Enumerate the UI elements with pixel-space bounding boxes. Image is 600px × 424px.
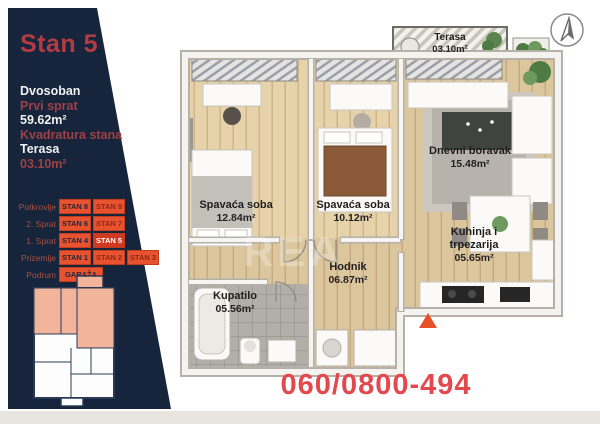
flyer-page: Stan 5 Dvosoban Prvi sprat 59.62m² Kvadr… xyxy=(0,0,600,424)
floorplan-drawing xyxy=(0,0,600,424)
room-label-kuhinja: Kuhinja i trpezarija 05.65m² xyxy=(433,226,515,265)
room-label-terasa: Terasa 03.10m² xyxy=(432,32,467,55)
room-label-spavaca-2: Spavaća soba 10.12m² xyxy=(316,199,389,225)
room-label-dnevni-boravak: Dnevni boravak 15.48m² xyxy=(429,145,511,171)
living-room-furniture xyxy=(406,59,552,212)
room-label-hodnik: Hodnik 06.87m² xyxy=(328,261,367,287)
phone-number: 060/0800-494 xyxy=(281,369,472,402)
compass-icon xyxy=(547,11,587,51)
room-label-kupatilo: Kupatilo 05.56m² xyxy=(213,290,257,316)
room-label-spavaca-1: Spavaća soba 12.84m² xyxy=(199,199,272,225)
